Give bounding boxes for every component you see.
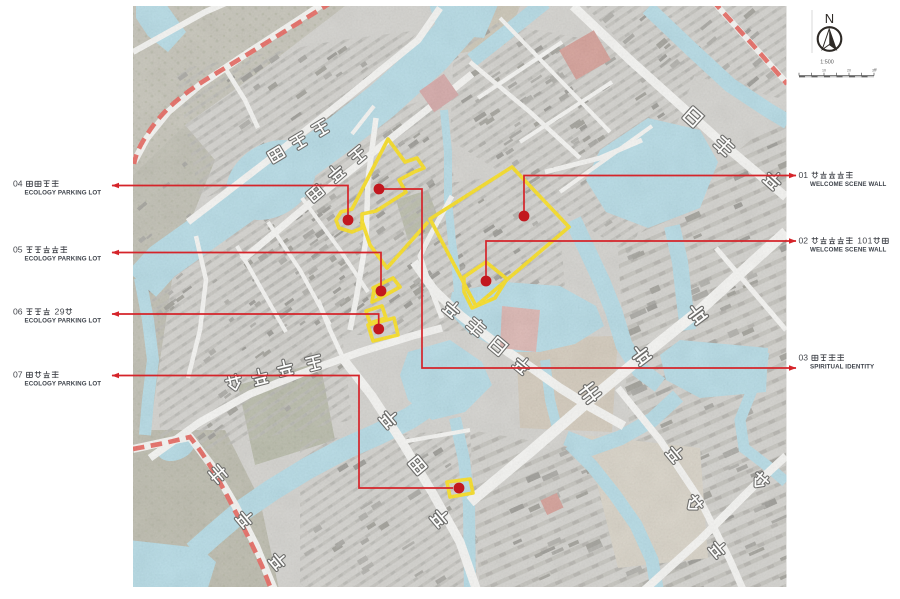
svg-text:ECOLOGY PARKING LOT: ECOLOGY PARKING LOT — [25, 317, 102, 324]
svg-text:02: 02 — [799, 236, 809, 246]
svg-text:04: 04 — [13, 179, 23, 189]
svg-text:ECOLOGY PARKING LOT: ECOLOGY PARKING LOT — [25, 380, 102, 387]
svg-text:N: N — [825, 11, 834, 26]
svg-text:20: 20 — [847, 69, 851, 73]
svg-text:ECOLOGY PARKING LOT: ECOLOGY PARKING LOT — [25, 255, 102, 262]
svg-text:1: 1 — [868, 236, 873, 246]
svg-text:m: m — [874, 68, 877, 72]
svg-text:07: 07 — [13, 370, 23, 380]
svg-text:1:500: 1:500 — [820, 60, 834, 66]
svg-text:9: 9 — [60, 307, 65, 317]
svg-text:06: 06 — [13, 307, 23, 317]
svg-text:WELCOME SCENE WALL: WELCOME SCENE WALL — [810, 181, 887, 188]
svg-text:05: 05 — [13, 245, 23, 255]
svg-text:01: 01 — [799, 170, 809, 180]
svg-text:SPIRITUAL IDENTITY: SPIRITUAL IDENTITY — [810, 363, 875, 370]
svg-text:ECOLOGY PARKING LOT: ECOLOGY PARKING LOT — [25, 189, 102, 196]
svg-text:03: 03 — [799, 353, 809, 363]
svg-text:WELCOME SCENE WALL: WELCOME SCENE WALL — [810, 246, 887, 253]
svg-text:10: 10 — [822, 69, 826, 73]
